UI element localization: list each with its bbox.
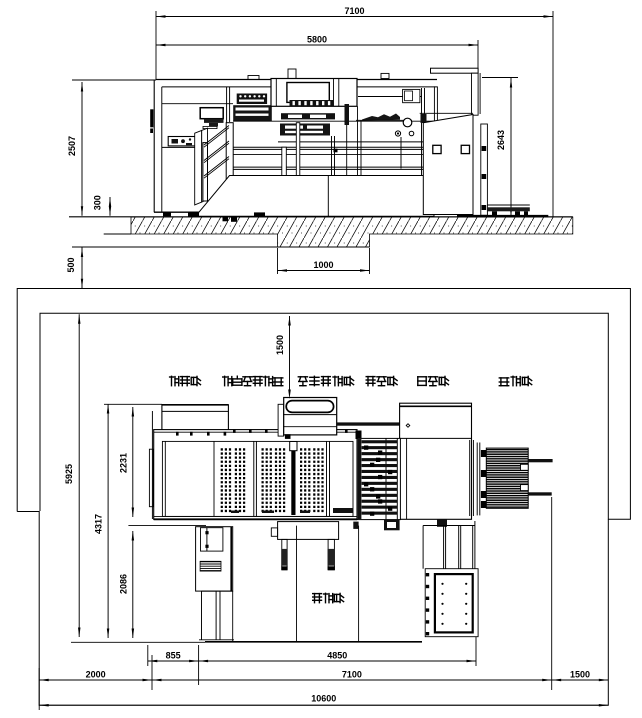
- svg-text:7100: 7100: [342, 670, 362, 680]
- svg-text:5925: 5925: [64, 464, 74, 484]
- svg-text:2231: 2231: [118, 453, 128, 473]
- svg-text:10600: 10600: [311, 694, 336, 704]
- svg-text:1000: 1000: [313, 260, 333, 270]
- svg-text:300: 300: [93, 195, 103, 210]
- svg-text:2507: 2507: [67, 136, 77, 156]
- svg-text:4850: 4850: [327, 651, 347, 661]
- svg-text:2000: 2000: [86, 670, 106, 680]
- svg-text:4317: 4317: [94, 514, 104, 534]
- svg-text:7100: 7100: [344, 6, 364, 16]
- svg-text:500: 500: [66, 257, 76, 272]
- svg-text:855: 855: [166, 651, 181, 661]
- svg-text:1500: 1500: [275, 335, 285, 355]
- svg-text:1500: 1500: [570, 670, 590, 680]
- svg-text:2643: 2643: [496, 130, 506, 150]
- svg-text:2086: 2086: [118, 574, 128, 594]
- svg-text:5800: 5800: [307, 35, 327, 45]
